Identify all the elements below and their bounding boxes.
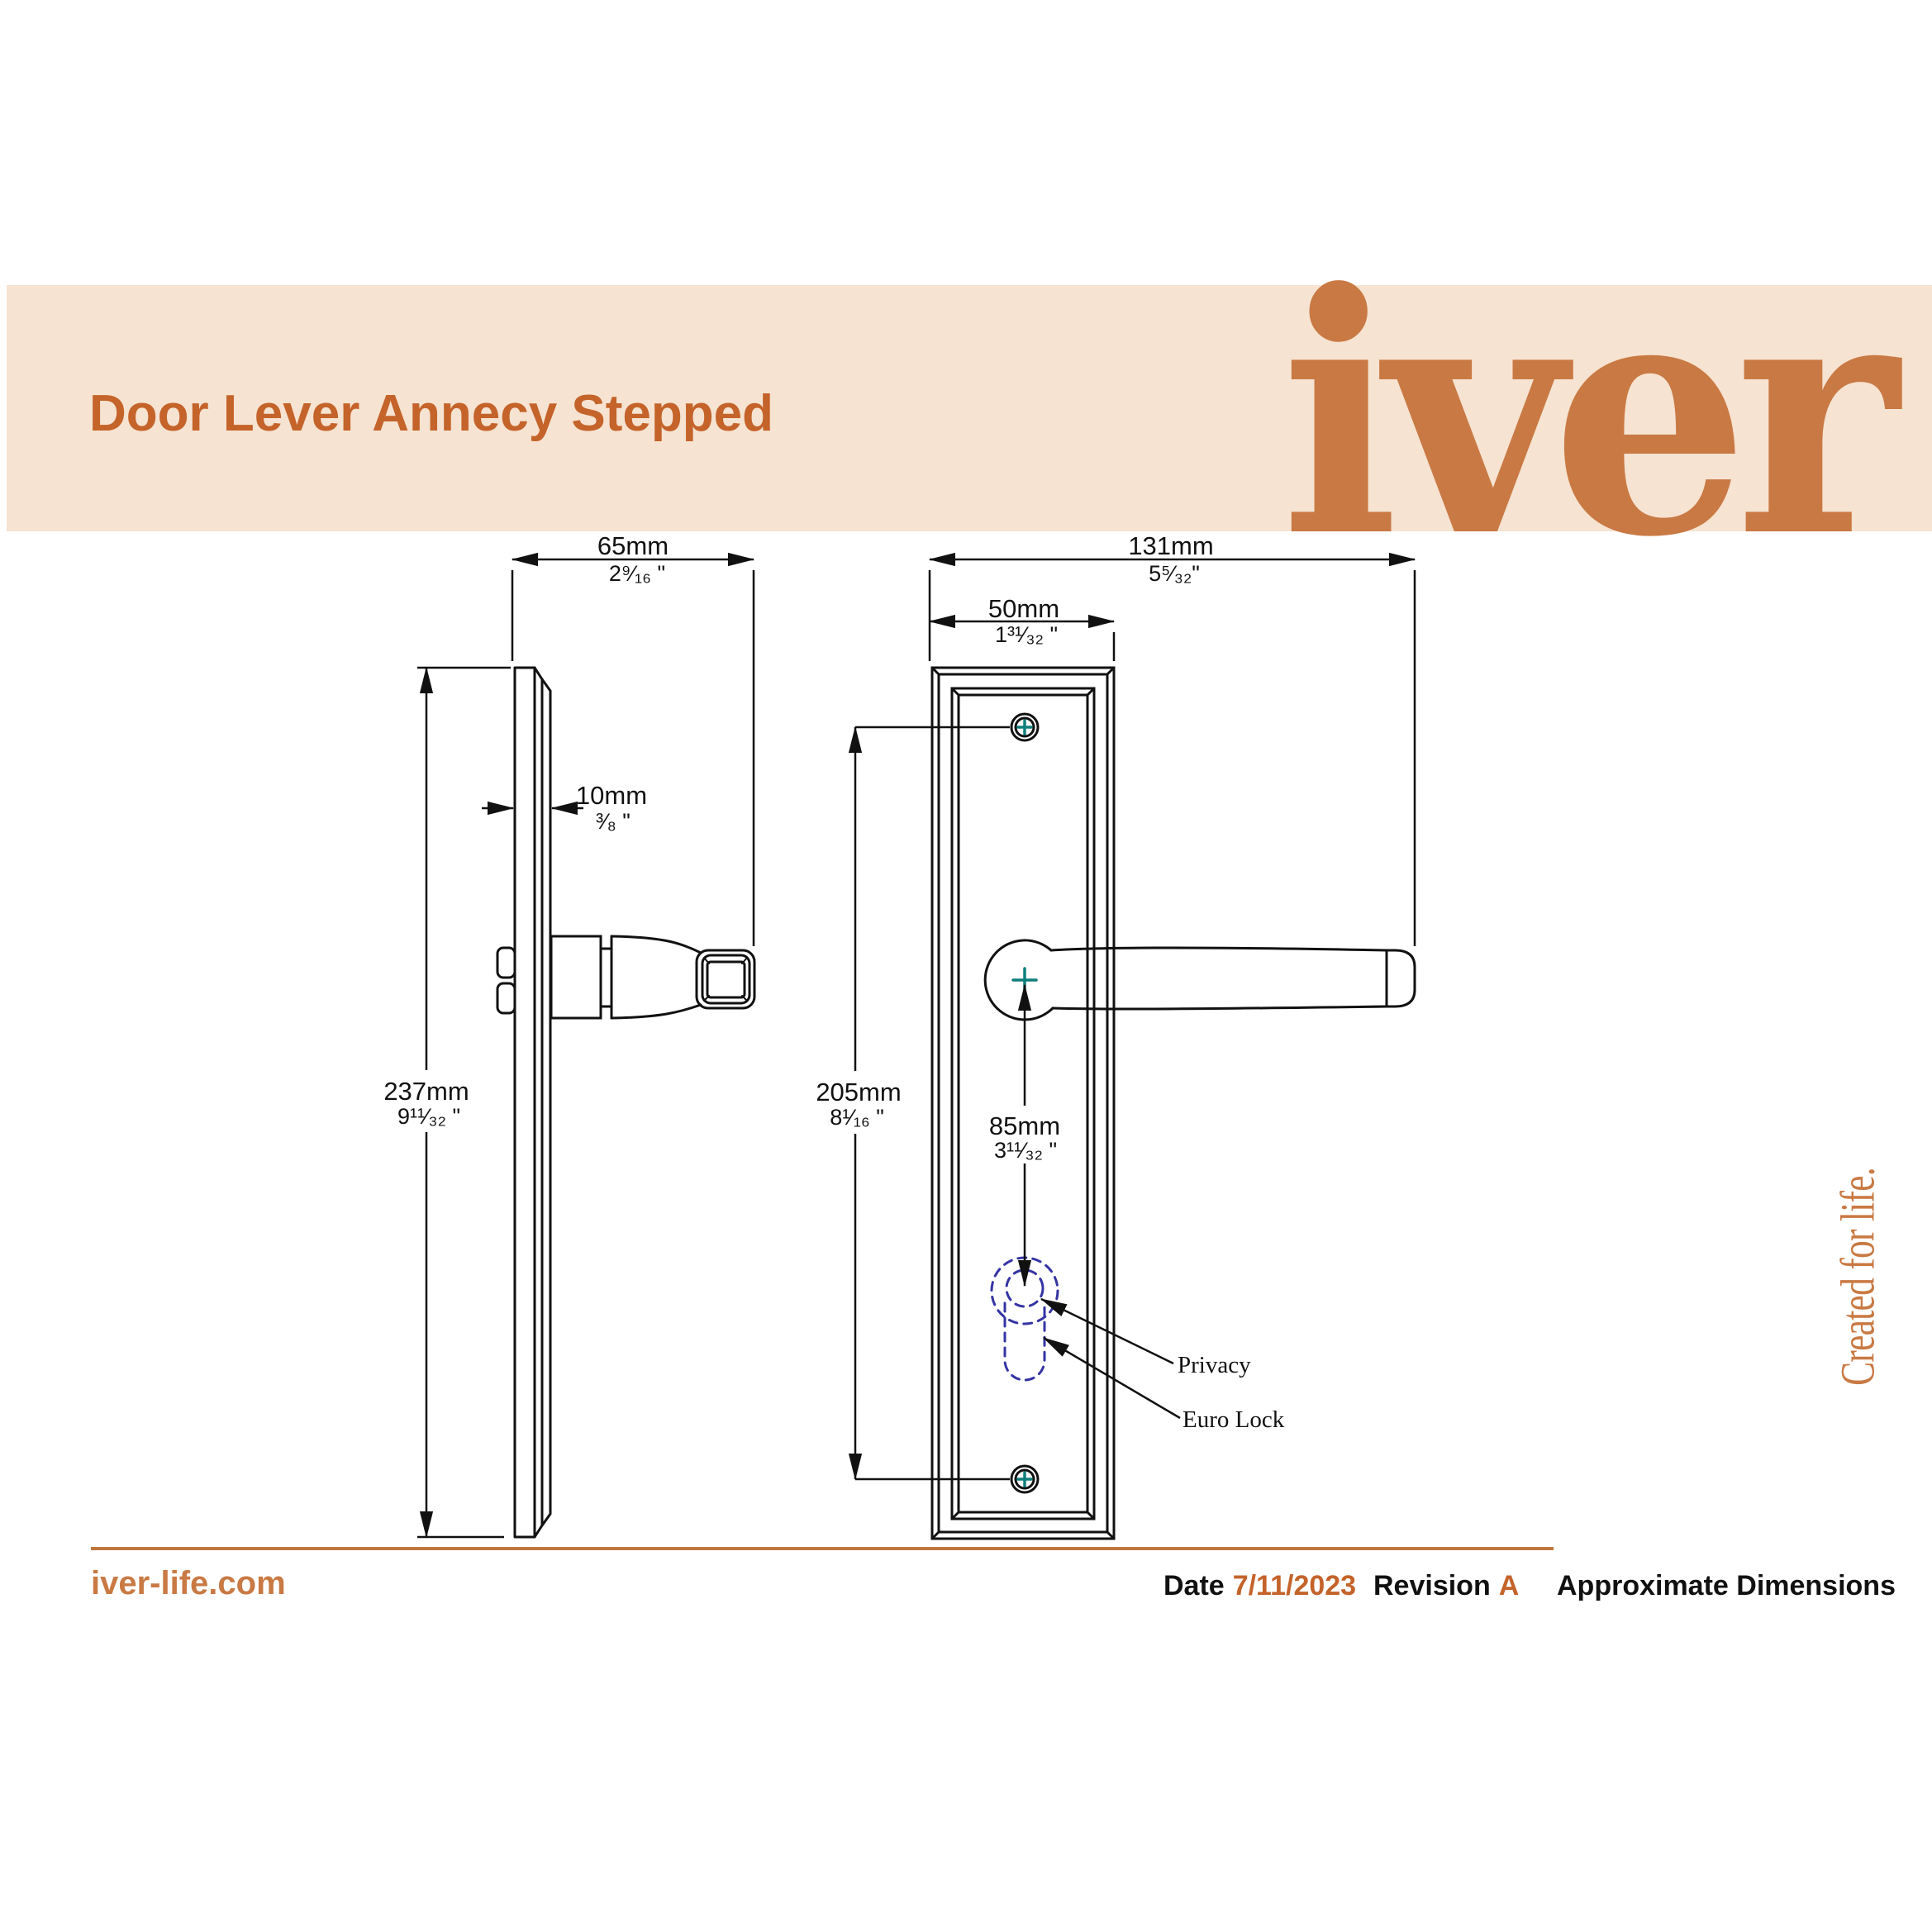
dim-plate-width-mm: 50mm [988, 596, 1059, 621]
dim-plate-width-in: 1³¹⁄₃₂ " [995, 624, 1058, 646]
dim-plate-thickness-in: ³⁄₈ " [596, 811, 631, 833]
date-label: Date [1163, 1570, 1225, 1601]
dim-screw-centres-in: 8¹⁄₁₆ " [823, 1106, 891, 1129]
technical-drawing [0, 0, 1932, 1932]
dim-lever-to-key-mm: 85mm [983, 1113, 1067, 1139]
footer-revision: RevisionA [1373, 1570, 1519, 1602]
lever-front-profile [985, 940, 1415, 1020]
callout-euro-lock: Euro Lock [1183, 1408, 1284, 1432]
revision-value: A [1499, 1570, 1520, 1601]
dim-plate-thickness-mm: 10mm [576, 783, 647, 808]
dim-overall-width-mm: 131mm [1128, 533, 1213, 559]
dim-plate-height-in: 9¹¹⁄₃₂ " [391, 1106, 467, 1128]
date-value: 7/11/2023 [1233, 1570, 1356, 1601]
dim-overall-width-in: 5⁵⁄₃₂" [1149, 563, 1200, 585]
backplate-front [932, 668, 1114, 1539]
revision-label: Revision [1373, 1570, 1491, 1601]
dim-side-projection-mm: 65mm [597, 533, 669, 559]
fixing-clips [497, 948, 515, 1013]
side-view-dimensions [417, 559, 754, 1537]
website-link[interactable]: iver-life.com [91, 1565, 286, 1602]
dim-screw-centres-mm: 205mm [809, 1079, 907, 1105]
brand-tagline: Created for life. [1830, 1168, 1886, 1386]
footer-note: Approximate Dimensions [1557, 1570, 1896, 1602]
callout-privacy: Privacy [1178, 1354, 1251, 1378]
footer-date: Date7/11/2023 [1163, 1570, 1356, 1602]
footer-divider [91, 1547, 1554, 1550]
lever-side-profile [551, 936, 754, 1018]
dim-plate-height-mm: 237mm [377, 1078, 475, 1104]
dim-lever-to-key-in: 3¹¹⁄₃₂ " [987, 1140, 1064, 1162]
spec-sheet: Door Lever Annecy Stepped iver [0, 0, 1932, 1932]
dim-side-projection-in: 2⁹⁄₁₆ " [609, 563, 665, 585]
front-view-drawing [932, 668, 1415, 1539]
